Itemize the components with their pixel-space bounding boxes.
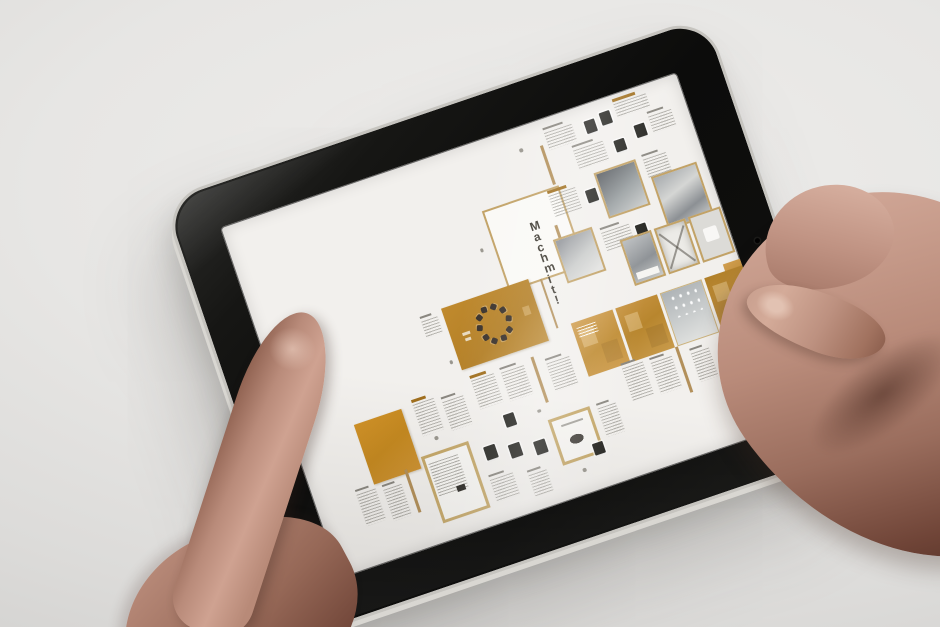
tile-dot[interactable]: [434, 436, 439, 441]
scene-figure: [505, 325, 514, 334]
tile-chip[interactable]: [599, 110, 614, 126]
tile-frame-doc[interactable]: [420, 441, 491, 524]
tile-lines[interactable]: [691, 347, 719, 381]
tile-chip[interactable]: [634, 122, 649, 138]
tile-lines[interactable]: [548, 187, 583, 217]
scene-detail: [522, 305, 532, 316]
orange-caption-lines: [576, 321, 598, 338]
tile-lines[interactable]: [546, 356, 578, 392]
tile-lines[interactable]: [651, 356, 682, 395]
scene-detail: [465, 337, 472, 342]
tile-lines[interactable]: [573, 140, 609, 169]
scene-figure: [506, 316, 513, 322]
tile-lines[interactable]: [622, 362, 653, 401]
tile-orange-solid[interactable]: [354, 409, 422, 485]
tile-lines[interactable]: [597, 402, 625, 436]
tile-chip[interactable]: [533, 439, 549, 456]
tile-chip[interactable]: [585, 188, 600, 204]
tile-chip[interactable]: [483, 444, 499, 461]
scene-figure: [500, 334, 507, 342]
tile-dot[interactable]: [479, 248, 484, 253]
tile-photo[interactable]: [594, 159, 651, 219]
tile-lines[interactable]: [490, 473, 520, 502]
tile-chip[interactable]: [584, 118, 599, 134]
tile-chip[interactable]: [503, 412, 518, 428]
tile-dot[interactable]: [519, 148, 524, 153]
scene-figure: [498, 306, 507, 314]
tile-lines[interactable]: [613, 93, 650, 118]
tile-frame-car[interactable]: [548, 406, 605, 466]
tile-vline[interactable]: [540, 145, 556, 184]
tile-lines[interactable]: [413, 398, 444, 437]
scene-figure: [475, 314, 484, 323]
tile-lines[interactable]: [357, 488, 386, 526]
scene-figure: [491, 337, 499, 345]
tile-chip[interactable]: [508, 441, 524, 458]
scene-figure: [481, 333, 490, 341]
tile-lines[interactable]: [443, 396, 473, 431]
photo-scene: Mach mit!: [0, 0, 940, 627]
front-camera-icon: [754, 237, 760, 243]
tile-lines[interactable]: [421, 316, 443, 337]
tile-lines[interactable]: [471, 373, 503, 409]
tile-dot[interactable]: [537, 409, 542, 414]
poster-text-lines: [559, 311, 563, 324]
tile-lines[interactable]: [383, 483, 412, 521]
tile-dot[interactable]: [449, 360, 454, 365]
tile-lines[interactable]: [528, 469, 553, 496]
scene-figure: [489, 302, 497, 310]
scene-detail: [462, 330, 471, 336]
scene-figure: [476, 326, 483, 332]
tile-dot[interactable]: [582, 468, 587, 473]
tile-lines[interactable]: [648, 109, 676, 133]
tile-lines[interactable]: [501, 365, 533, 401]
scene-figure: [480, 305, 487, 313]
tile-chip[interactable]: [613, 137, 628, 153]
